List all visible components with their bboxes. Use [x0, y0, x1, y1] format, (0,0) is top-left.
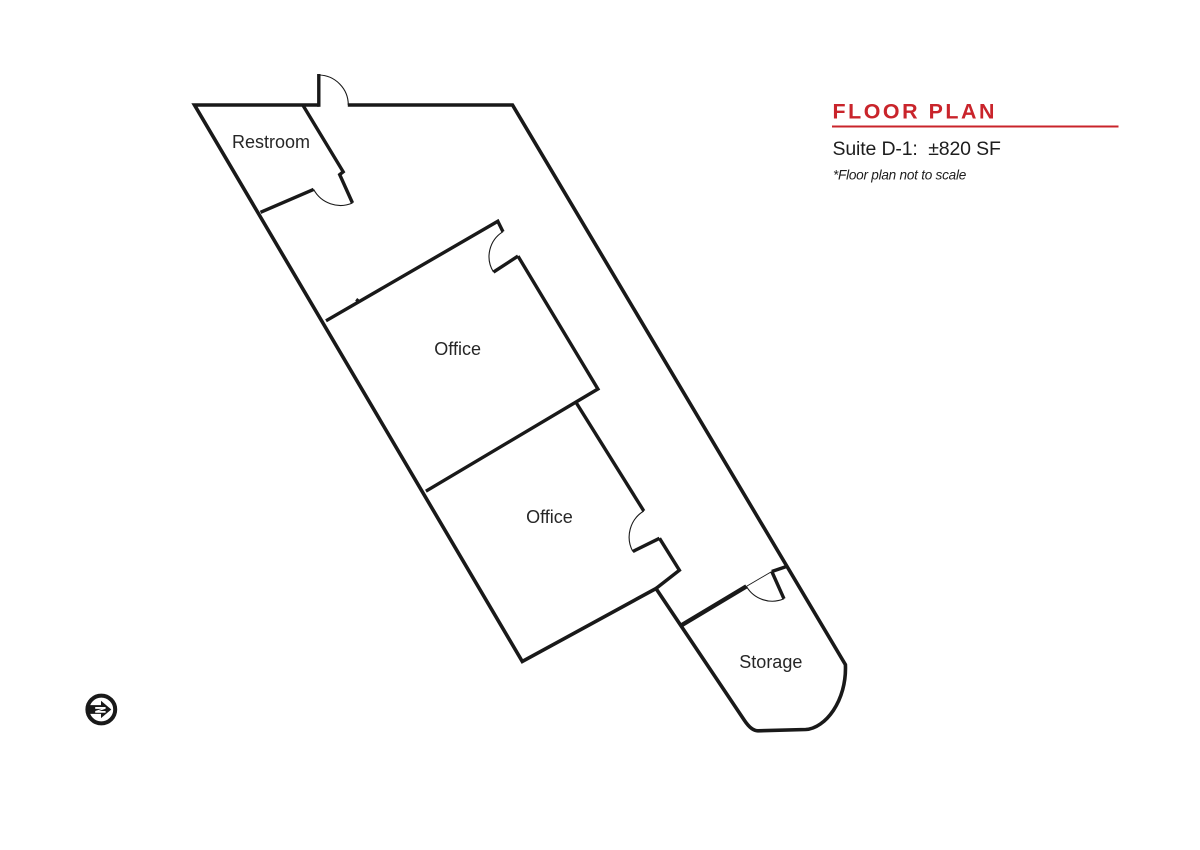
svg-text:Office: Office — [434, 339, 481, 359]
svg-text:FLOOR PLAN: FLOOR PLAN — [833, 99, 998, 123]
svg-text:Storage: Storage — [739, 652, 802, 672]
svg-text:Suite D-1: ±820 SF: Suite D-1: ±820 SF — [833, 138, 1001, 160]
svg-text:*Floor plan not to scale: *Floor plan not to scale — [833, 168, 967, 183]
svg-text:Restroom: Restroom — [232, 132, 310, 152]
svg-text:Office: Office — [526, 507, 573, 527]
